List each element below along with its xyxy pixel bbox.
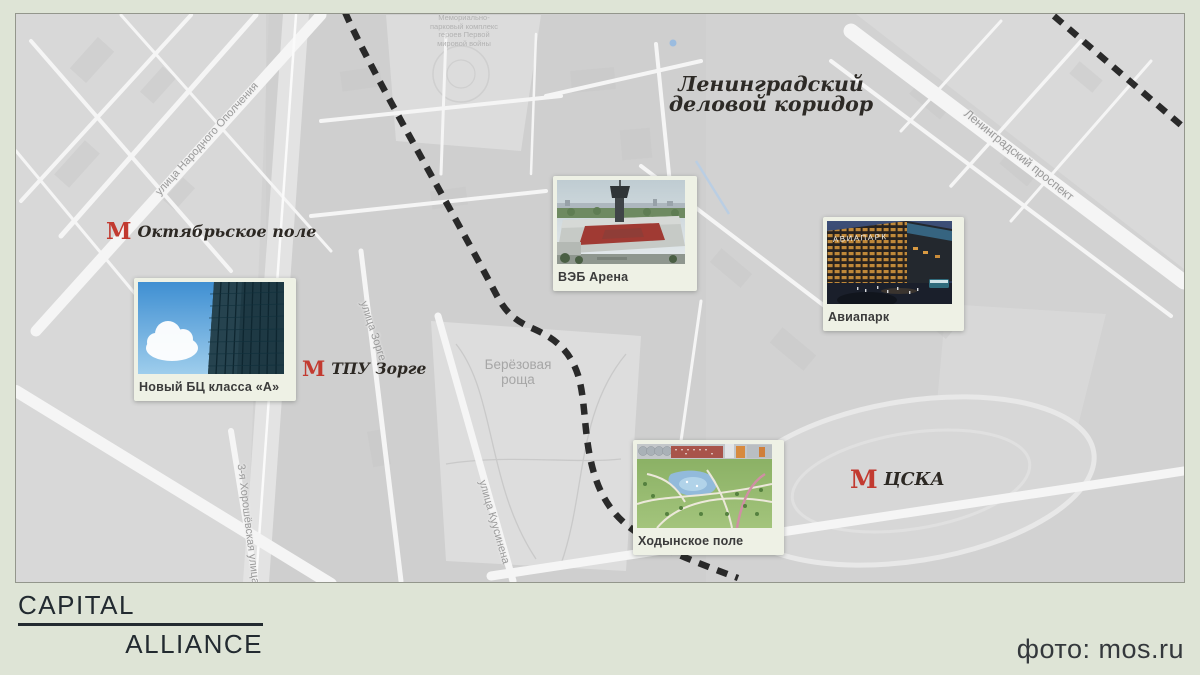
capital-alliance-logo: CAPITAL ALLIANCE — [18, 590, 263, 660]
metro-station-oktyabrskoye-pole: М Октябрьское поле — [106, 220, 316, 243]
metro-station-tpu-zorge: М ТПУ Зорге — [302, 358, 426, 379]
card-new-business-center: Новый БЦ класса «А» — [134, 278, 296, 401]
metro-station-label: Октябрьское поле — [137, 222, 316, 241]
logo-word-capital: CAPITAL — [18, 590, 263, 621]
corridor-title: Ленинградский деловой коридор — [656, 74, 886, 114]
metro-station-cska: М ЦСКА — [850, 467, 945, 492]
corridor-title-line: деловой коридор — [656, 94, 886, 114]
logo-word-alliance: ALLIANCE — [18, 629, 263, 660]
stadium-photo — [557, 180, 693, 264]
metro-station-label: ЦСКА — [884, 470, 945, 490]
memorial-label-line: мировой войны — [414, 40, 514, 49]
park-label-line: роща — [463, 372, 573, 387]
office-tower-photo — [138, 282, 292, 374]
metro-m-icon: М — [850, 467, 878, 492]
photo-credit: фото: mos.ru — [1017, 634, 1184, 665]
slide-page: Мемориально- парковый комплекс героев Пе… — [0, 0, 1200, 675]
card-veb-arena: ВЭБ Арена — [553, 176, 697, 291]
corridor-title-line: Ленинградский — [656, 74, 886, 94]
mall-photo: АВИАПАРК — [827, 221, 960, 304]
birch-grove-park-label: Берёзовая роща — [463, 357, 573, 387]
card-label: Ходынское поле — [637, 528, 780, 553]
park-label-line: Берёзовая — [463, 357, 573, 372]
metro-m-icon: М — [302, 358, 325, 379]
card-label: ВЭБ Арена — [557, 264, 693, 289]
card-label: Авиапарк — [827, 304, 960, 329]
memorial-park-label: Мемориально- парковый комплекс героев Пе… — [414, 14, 514, 48]
metro-station-label: ТПУ Зорге — [331, 359, 426, 378]
card-aviapark: АВИАПАРК Авиапарк — [823, 217, 964, 331]
card-khodynskoye-pole: Ходынское поле — [633, 440, 784, 555]
city-map: Мемориально- парковый комплекс героев Пе… — [15, 13, 1185, 583]
metro-m-icon: М — [106, 220, 131, 243]
card-label: Новый БЦ класса «А» — [138, 374, 292, 399]
park-photo — [637, 444, 780, 528]
logo-divider — [18, 623, 263, 626]
